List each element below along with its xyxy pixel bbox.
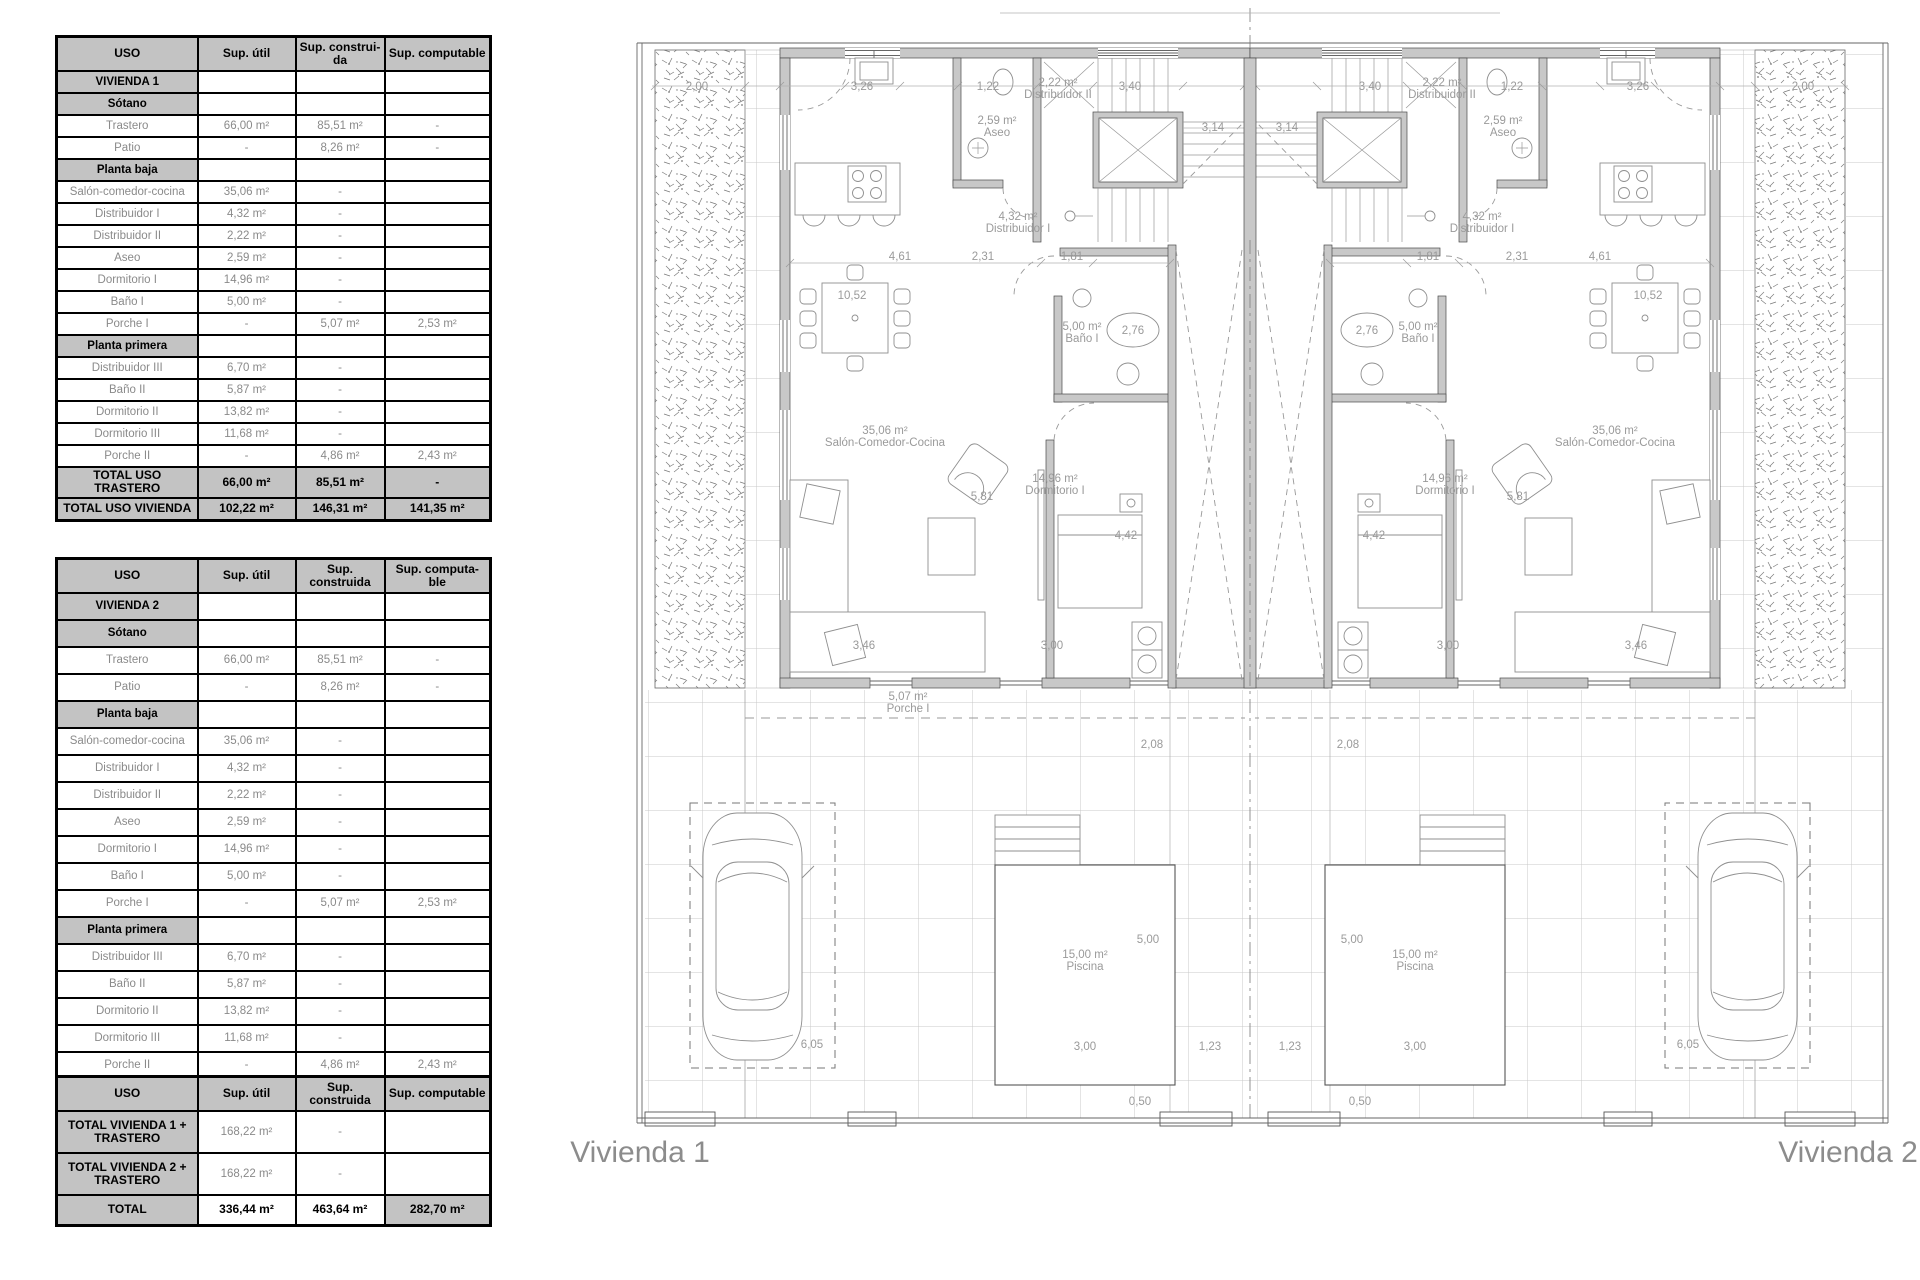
value-cell: 85,51 m²	[296, 467, 385, 498]
plan-label: 0,50	[1349, 1096, 1371, 1108]
column-header: Sup. computable	[385, 1077, 491, 1112]
value-cell	[385, 71, 491, 93]
value-cell: 14,96 m²	[198, 269, 296, 291]
value-cell: -	[198, 674, 296, 701]
table-vivienda-1: USOSup. útilSup. construi- daSup. comput…	[55, 35, 492, 522]
uso-cell: Distribuidor I	[57, 203, 198, 225]
plan-label: Distribuidor II	[1024, 89, 1092, 101]
value-cell	[198, 71, 296, 93]
table-row: Patio-8,26 m²-	[57, 137, 491, 159]
uso-cell: Dormitorio II	[57, 401, 198, 423]
value-cell: 336,44 m²	[198, 1195, 296, 1226]
value-cell: -	[296, 291, 385, 313]
uso-cell: Planta baja	[57, 701, 198, 728]
value-cell: 6,70 m²	[198, 357, 296, 379]
uso-cell: VIVIENDA 1	[57, 71, 198, 93]
value-cell: -	[385, 137, 491, 159]
plan-label: 6,05	[801, 1039, 823, 1051]
value-cell: 13,82 m²	[198, 998, 296, 1025]
table-row: Baño I5,00 m²-	[57, 863, 491, 890]
value-cell: 4,86 m²	[296, 445, 385, 467]
value-cell: -	[296, 181, 385, 203]
plan-label: 5,81	[971, 491, 993, 503]
plan-label: 1,81	[1417, 251, 1439, 263]
uso-cell: Distribuidor II	[57, 225, 198, 247]
plan-label: 1,81	[1061, 251, 1083, 263]
table-row: Planta baja	[57, 701, 491, 728]
table-row: Porche I-5,07 m²2,53 m²	[57, 890, 491, 917]
uso-cell: Aseo	[57, 247, 198, 269]
uso-cell: Trastero	[57, 115, 198, 137]
value-cell: -	[198, 890, 296, 917]
value-cell	[296, 93, 385, 115]
plan-label: 1,22	[1501, 81, 1523, 93]
plan-label: 2,00	[686, 81, 708, 93]
value-cell	[385, 782, 491, 809]
column-header: Sup. útil	[198, 559, 296, 594]
plan-label: Distribuidor I	[1450, 223, 1515, 235]
table-row: Salón-comedor-cocina35,06 m²-	[57, 181, 491, 203]
plan-label: 3,00	[1437, 640, 1459, 652]
value-cell	[385, 620, 491, 647]
value-cell: -	[296, 863, 385, 890]
value-cell: -	[296, 247, 385, 269]
table-row: Distribuidor III6,70 m²-	[57, 944, 491, 971]
uso-cell: Salón-comedor-cocina	[57, 181, 198, 203]
plan-label: 0,50	[1129, 1096, 1151, 1108]
value-cell	[385, 181, 491, 203]
value-cell: 2,53 m²	[385, 313, 491, 335]
plan-label: 3,00	[1041, 640, 1063, 652]
table-row: Aseo2,59 m²-	[57, 247, 491, 269]
plan-label: Porche I	[887, 703, 930, 715]
plan-label: 4,42	[1363, 530, 1385, 542]
column-header: Sup. computable	[385, 37, 491, 72]
value-cell: -	[296, 423, 385, 445]
value-cell: -	[385, 647, 491, 674]
plan-label: 3,26	[1627, 81, 1649, 93]
value-cell: -	[385, 674, 491, 701]
plan-label: 5,00 m²	[1063, 321, 1102, 333]
column-header: Sup. construi- da	[296, 37, 385, 72]
value-cell: 4,32 m²	[198, 755, 296, 782]
plan-label: 1,22	[977, 81, 999, 93]
value-cell: -	[198, 313, 296, 335]
value-cell: -	[296, 203, 385, 225]
uso-cell: TOTAL USO VIVIENDA	[57, 498, 198, 521]
table-row: Aseo2,59 m²-	[57, 809, 491, 836]
value-cell: -	[198, 445, 296, 467]
title-vivienda-1: Vivienda 1	[570, 1136, 710, 1169]
table-header-row: USOSup. útilSup. construi- daSup. comput…	[57, 37, 491, 72]
value-cell	[385, 1153, 491, 1195]
table-row: Porche II-4,86 m²2,43 m²	[57, 445, 491, 467]
table-vivienda-2: USOSup. útilSup. construidaSup. computa-…	[55, 557, 492, 1139]
uso-cell: TOTAL VIVIENDA 1 + TRASTERO	[57, 1111, 198, 1153]
uso-cell: VIVIENDA 2	[57, 593, 198, 620]
value-cell: 463,64 m²	[296, 1195, 385, 1226]
table-row: Sótano	[57, 93, 491, 115]
table-row: Baño II5,87 m²-	[57, 971, 491, 998]
plan-label: 5,07 m²	[889, 691, 928, 703]
table-row: Baño I5,00 m²-	[57, 291, 491, 313]
table-row: VIVIENDA 2	[57, 593, 491, 620]
uso-cell: Planta primera	[57, 917, 198, 944]
value-cell: -	[296, 755, 385, 782]
value-cell	[385, 944, 491, 971]
value-cell: 141,35 m²	[385, 498, 491, 521]
value-cell	[385, 701, 491, 728]
value-cell	[296, 159, 385, 181]
value-cell: 5,00 m²	[198, 863, 296, 890]
plan-label: 15,00 m²	[1392, 949, 1438, 961]
value-cell: -	[296, 809, 385, 836]
plan-label: Aseo	[984, 127, 1010, 139]
value-cell: 102,22 m²	[198, 498, 296, 521]
value-cell	[198, 335, 296, 357]
plan-label: 3,46	[1625, 640, 1647, 652]
value-cell: -	[296, 225, 385, 247]
plan-label: 3,00	[1404, 1041, 1426, 1053]
plan-label: 3,40	[1359, 81, 1381, 93]
value-cell: -	[385, 115, 491, 137]
uso-cell: Patio	[57, 137, 198, 159]
column-header: Sup. útil	[198, 1077, 296, 1112]
value-cell	[198, 93, 296, 115]
value-cell: 2,22 m²	[198, 782, 296, 809]
value-cell: 5,87 m²	[198, 379, 296, 401]
value-cell: 2,43 m²	[385, 445, 491, 467]
value-cell: 11,68 m²	[198, 1025, 296, 1052]
uso-cell: Sótano	[57, 93, 198, 115]
table-row: TOTAL VIVIENDA 1 + TRASTERO168,22 m²-	[57, 1111, 491, 1153]
plan-label: 6,05	[1677, 1039, 1699, 1051]
table-row: TOTAL336,44 m²463,64 m²282,70 m²	[57, 1195, 491, 1226]
uso-cell: Distribuidor II	[57, 782, 198, 809]
value-cell: -	[296, 836, 385, 863]
value-cell: 5,07 m²	[296, 313, 385, 335]
column-header: Sup. computa- ble	[385, 559, 491, 594]
value-cell	[385, 423, 491, 445]
value-cell: 168,22 m²	[198, 1153, 296, 1195]
value-cell	[296, 917, 385, 944]
uso-cell: Distribuidor III	[57, 944, 198, 971]
plan-label: 2,76	[1122, 325, 1144, 337]
table-totals: USOSup. útilSup. construidaSup. computab…	[55, 1075, 492, 1227]
value-cell: 2,22 m²	[198, 225, 296, 247]
value-cell: 66,00 m²	[198, 467, 296, 498]
value-cell: 2,53 m²	[385, 890, 491, 917]
uso-cell: Distribuidor I	[57, 755, 198, 782]
plan-label: 2,00	[1792, 81, 1814, 93]
plan-label: 10,52	[1634, 290, 1663, 302]
plan-label: 14,96 m²	[1422, 473, 1468, 485]
value-cell: 6,70 m²	[198, 944, 296, 971]
value-cell: 85,51 m²	[296, 115, 385, 137]
uso-cell: Patio	[57, 674, 198, 701]
value-cell	[296, 620, 385, 647]
value-cell	[385, 159, 491, 181]
value-cell: 66,00 m²	[198, 647, 296, 674]
uso-cell: TOTAL USO TRASTERO	[57, 467, 198, 498]
value-cell	[385, 269, 491, 291]
value-cell	[296, 71, 385, 93]
table-row: TOTAL USO VIVIENDA102,22 m²146,31 m²141,…	[57, 498, 491, 521]
value-cell	[385, 93, 491, 115]
table-header-row: USOSup. útilSup. construidaSup. computab…	[57, 1077, 491, 1112]
uso-cell: Dormitorio I	[57, 836, 198, 863]
table-row: VIVIENDA 1	[57, 71, 491, 93]
uso-cell: Aseo	[57, 809, 198, 836]
value-cell: 35,06 m²	[198, 728, 296, 755]
plan-label: 3,26	[851, 81, 873, 93]
value-cell	[198, 917, 296, 944]
value-cell	[385, 379, 491, 401]
plan-label: 5,81	[1507, 491, 1529, 503]
table-row: TOTAL VIVIENDA 2 + TRASTERO168,22 m²-	[57, 1153, 491, 1195]
value-cell: 2,59 m²	[198, 809, 296, 836]
plan-label: 14,96 m²	[1032, 473, 1078, 485]
value-cell: 13,82 m²	[198, 401, 296, 423]
plan-label: 2,22 m²	[1423, 77, 1462, 89]
plan-label: 2,31	[1506, 251, 1528, 263]
uso-cell: Planta primera	[57, 335, 198, 357]
table-header-row: USOSup. útilSup. construidaSup. computa-…	[57, 559, 491, 594]
uso-cell: Baño I	[57, 863, 198, 890]
table-row: Sótano	[57, 620, 491, 647]
value-cell	[385, 809, 491, 836]
value-cell: 8,26 m²	[296, 137, 385, 159]
value-cell	[385, 998, 491, 1025]
value-cell	[385, 863, 491, 890]
value-cell	[296, 701, 385, 728]
table-row: Distribuidor II2,22 m²-	[57, 225, 491, 247]
value-cell	[385, 1111, 491, 1153]
plan-label: 35,06 m²	[862, 425, 908, 437]
plan-label: 3,00	[1074, 1041, 1096, 1053]
plan-label: Salón-Comedor-Cocina	[825, 437, 946, 449]
column-header: USO	[57, 559, 198, 594]
column-header: Sup. útil	[198, 37, 296, 72]
value-cell: -	[296, 401, 385, 423]
uso-cell: Dormitorio III	[57, 423, 198, 445]
value-cell	[385, 225, 491, 247]
plan-label: 4,61	[1589, 251, 1611, 263]
value-cell: -	[296, 971, 385, 998]
value-cell	[385, 357, 491, 379]
uso-cell: Porche II	[57, 445, 198, 467]
table-row: Planta primera	[57, 335, 491, 357]
column-header: USO	[57, 37, 198, 72]
plan-label: Dormitorio I	[1025, 485, 1084, 497]
value-cell: 5,87 m²	[198, 971, 296, 998]
table-row: Salón-comedor-cocina35,06 m²-	[57, 728, 491, 755]
plan-label: 1,23	[1199, 1041, 1221, 1053]
column-header: Sup. construida	[296, 1077, 385, 1112]
plan-label: 10,52	[838, 290, 867, 302]
table-row: Dormitorio III11,68 m²-	[57, 423, 491, 445]
table-row: Dormitorio III11,68 m²-	[57, 1025, 491, 1052]
table-row: Porche I-5,07 m²2,53 m²	[57, 313, 491, 335]
value-cell: 5,07 m²	[296, 890, 385, 917]
value-cell	[385, 203, 491, 225]
value-cell: 168,22 m²	[198, 1111, 296, 1153]
value-cell	[385, 917, 491, 944]
table-row: Planta primera	[57, 917, 491, 944]
value-cell: -	[296, 782, 385, 809]
value-cell	[385, 755, 491, 782]
value-cell: 11,68 m²	[198, 423, 296, 445]
value-cell	[198, 593, 296, 620]
plan-label: 4,32 m²	[999, 211, 1038, 223]
value-cell: 66,00 m²	[198, 115, 296, 137]
table-row: Distribuidor I4,32 m²-	[57, 755, 491, 782]
plan-label: 4,61	[889, 251, 911, 263]
plan-label: 35,06 m²	[1592, 425, 1638, 437]
value-cell: 2,59 m²	[198, 247, 296, 269]
uso-cell: Porche I	[57, 313, 198, 335]
value-cell: -	[198, 137, 296, 159]
value-cell: -	[296, 269, 385, 291]
uso-cell: Sótano	[57, 620, 198, 647]
uso-cell: Baño II	[57, 971, 198, 998]
value-cell: 146,31 m²	[296, 498, 385, 521]
value-cell: -	[296, 1153, 385, 1195]
plan-label: 3,14	[1276, 122, 1299, 134]
value-cell	[198, 159, 296, 181]
table-row: Patio-8,26 m²-	[57, 674, 491, 701]
plan-label: 5,00	[1137, 934, 1159, 946]
table-row: TOTAL USO TRASTERO66,00 m²85,51 m²-	[57, 467, 491, 498]
value-cell: -	[296, 379, 385, 401]
value-cell: 4,32 m²	[198, 203, 296, 225]
value-cell: 35,06 m²	[198, 181, 296, 203]
plan-label: 3,14	[1202, 122, 1225, 134]
plan-label: 4,32 m²	[1463, 211, 1502, 223]
value-cell: -	[296, 1111, 385, 1153]
value-cell: 14,96 m²	[198, 836, 296, 863]
title-vivienda-2: Vivienda 2	[1778, 1136, 1918, 1169]
value-cell: 282,70 m²	[385, 1195, 491, 1226]
uso-cell: Dormitorio II	[57, 998, 198, 1025]
plan-label: 2,08	[1141, 739, 1163, 751]
value-cell	[296, 335, 385, 357]
plan-label: Dormitorio I	[1415, 485, 1474, 497]
plan-label: 2,59 m²	[1484, 115, 1523, 127]
plan-label: Salón-Comedor-Cocina	[1555, 437, 1676, 449]
value-cell	[385, 728, 491, 755]
value-cell	[385, 401, 491, 423]
plan-label: Baño I	[1401, 333, 1434, 345]
value-cell: -	[296, 728, 385, 755]
plan-label: 1,23	[1279, 1041, 1301, 1053]
plan-label: Piscina	[1396, 961, 1434, 973]
table-row: Dormitorio II13,82 m²-	[57, 401, 491, 423]
value-cell: -	[296, 357, 385, 379]
value-cell	[296, 593, 385, 620]
plan-label: 2,22 m²	[1039, 77, 1078, 89]
value-cell: -	[296, 998, 385, 1025]
value-cell: -	[296, 1025, 385, 1052]
value-cell: -	[296, 944, 385, 971]
uso-cell: TOTAL	[57, 1195, 198, 1226]
plan-label: Baño I	[1065, 333, 1098, 345]
uso-cell: Porche I	[57, 890, 198, 917]
value-cell	[385, 1025, 491, 1052]
column-header: Sup. construida	[296, 559, 385, 594]
plan-label: Aseo	[1490, 127, 1516, 139]
uso-cell: Baño II	[57, 379, 198, 401]
value-cell: -	[385, 467, 491, 498]
sheet: Vivienda 1Vivienda 22,59 m²Aseo2,59 m²As…	[0, 0, 1920, 1280]
value-cell	[385, 971, 491, 998]
table-row: Dormitorio II13,82 m²-	[57, 998, 491, 1025]
uso-cell: Planta baja	[57, 159, 198, 181]
value-cell	[385, 836, 491, 863]
uso-cell: Dormitorio I	[57, 269, 198, 291]
uso-cell: Dormitorio III	[57, 1025, 198, 1052]
value-cell: 85,51 m²	[296, 647, 385, 674]
table-row: Distribuidor III6,70 m²-	[57, 357, 491, 379]
plan-label: 2,76	[1356, 325, 1378, 337]
table-row: Distribuidor II2,22 m²-	[57, 782, 491, 809]
table-row: Trastero66,00 m²85,51 m²-	[57, 647, 491, 674]
plan-label: 15,00 m²	[1062, 949, 1108, 961]
uso-cell: Baño I	[57, 291, 198, 313]
plan-label: 2,31	[972, 251, 994, 263]
uso-cell: Salón-comedor-cocina	[57, 728, 198, 755]
plan-label: 4,42	[1115, 530, 1137, 542]
column-header: USO	[57, 1077, 198, 1112]
value-cell	[198, 620, 296, 647]
table-row: Trastero66,00 m²85,51 m²-	[57, 115, 491, 137]
plan-label: 3,40	[1119, 81, 1141, 93]
table-row: Dormitorio I14,96 m²-	[57, 269, 491, 291]
table-row: Distribuidor I4,32 m²-	[57, 203, 491, 225]
value-cell: 8,26 m²	[296, 674, 385, 701]
value-cell	[385, 291, 491, 313]
plan-label: Piscina	[1066, 961, 1104, 973]
value-cell	[385, 247, 491, 269]
value-cell	[198, 701, 296, 728]
value-cell	[385, 335, 491, 357]
value-cell: 5,00 m²	[198, 291, 296, 313]
plan-label: 3,46	[853, 640, 875, 652]
plan-label: 5,00 m²	[1399, 321, 1438, 333]
uso-cell: Trastero	[57, 647, 198, 674]
table-row: Baño II5,87 m²-	[57, 379, 491, 401]
plan-label: Distribuidor I	[986, 223, 1051, 235]
plan-label: 2,08	[1337, 739, 1359, 751]
uso-cell: Distribuidor III	[57, 357, 198, 379]
plan-label: 5,00	[1341, 934, 1363, 946]
uso-cell: TOTAL VIVIENDA 2 + TRASTERO	[57, 1153, 198, 1195]
plan-label: 2,59 m²	[978, 115, 1017, 127]
value-cell	[385, 593, 491, 620]
plan-label: Distribuidor II	[1408, 89, 1476, 101]
table-row: Planta baja	[57, 159, 491, 181]
table-row: Dormitorio I14,96 m²-	[57, 836, 491, 863]
